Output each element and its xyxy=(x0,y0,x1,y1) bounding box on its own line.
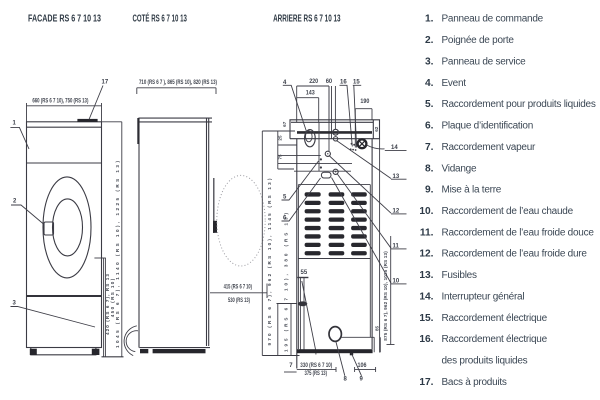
svg-text:10.: 10. xyxy=(419,206,433,217)
svg-text:75: 75 xyxy=(278,154,283,160)
svg-text:4.: 4. xyxy=(425,78,434,89)
svg-text:Fusibles: Fusibles xyxy=(442,270,477,281)
svg-text:Raccordement de l’eau chaude: Raccordement de l’eau chaude xyxy=(442,206,574,217)
svg-text:Raccordement vapeur: Raccordement vapeur xyxy=(442,142,537,153)
svg-text:375 (RS 13): 375 (RS 13) xyxy=(305,371,328,377)
svg-text:55: 55 xyxy=(301,270,308,276)
svg-text:15.: 15. xyxy=(419,313,433,324)
svg-text:14: 14 xyxy=(391,145,398,151)
svg-text:220: 220 xyxy=(309,79,319,85)
svg-text:Mise à la terre: Mise à la terre xyxy=(442,185,502,196)
svg-text:16: 16 xyxy=(340,80,347,86)
svg-text:17: 17 xyxy=(102,80,109,86)
svg-text:Raccordement électrique: Raccordement électrique xyxy=(442,334,548,345)
svg-text:415 (RS 6 7 10): 415 (RS 6 7 10) xyxy=(224,285,252,291)
svg-text:Raccordement électrique: Raccordement électrique xyxy=(442,313,548,324)
svg-text:FACADE RS 6 7 10 13: FACADE RS 6 7 10 13 xyxy=(28,14,101,25)
svg-text:6.: 6. xyxy=(425,121,434,132)
svg-text:190: 190 xyxy=(360,99,370,105)
svg-text:330 (RS 6 7 10): 330 (RS 6 7 10) xyxy=(300,363,332,369)
svg-text:ARRIERE RS 6 7 10 13: ARRIERE RS 6 7 10 13 xyxy=(273,14,341,25)
svg-text:Raccordement de l’eau froide d: Raccordement de l’eau froide douce xyxy=(442,227,595,238)
svg-text:Event: Event xyxy=(442,78,467,89)
svg-text:8.: 8. xyxy=(425,163,434,174)
svg-text:710 (RS 6 7 ), 865 (RS 10), 82: 710 (RS 6 7 ), 865 (RS 10), 820 (RS 13) xyxy=(139,80,217,86)
svg-text:Bacs à produits: Bacs à produits xyxy=(442,377,507,388)
svg-text:des produits liquides: des produits liquides xyxy=(442,356,528,367)
svg-text:13.: 13. xyxy=(419,270,433,281)
svg-text:COTÉ RS 6 7 10 13: COTÉ RS 6 7 10 13 xyxy=(133,13,188,25)
svg-text:11.: 11. xyxy=(420,227,434,238)
svg-text:530 (RS 13): 530 (RS 13) xyxy=(228,298,250,304)
svg-text:17.: 17. xyxy=(419,377,433,388)
svg-text:Raccordement pour produits liq: Raccordement pour produits liquides xyxy=(442,99,596,110)
svg-text:16.: 16. xyxy=(419,334,433,345)
svg-text:9.: 9. xyxy=(425,185,434,196)
svg-text:Vidange: Vidange xyxy=(442,163,477,174)
svg-text:1.: 1. xyxy=(425,14,434,25)
svg-text:12.: 12. xyxy=(419,249,433,260)
svg-text:Interrupteur général: Interrupteur général xyxy=(442,292,525,303)
svg-text:60: 60 xyxy=(326,79,333,85)
svg-text:106: 106 xyxy=(358,363,368,369)
svg-text:25: 25 xyxy=(278,135,283,141)
svg-text:Panneau de commande: Panneau de commande xyxy=(442,14,544,25)
svg-text:660 (RS 6 7 10), 750 (RS 13): 660 (RS 6 7 10), 750 (RS 13) xyxy=(32,99,88,105)
svg-text:Poignée de porte: Poignée de porte xyxy=(442,35,515,46)
svg-text:Plaque d’identification: Plaque d’identification xyxy=(442,121,534,132)
svg-text:Raccordement de l’eau froide d: Raccordement de l’eau froide dure xyxy=(442,249,588,260)
svg-text:2.: 2. xyxy=(425,35,434,46)
svg-text:7.: 7. xyxy=(425,142,434,153)
svg-text:67: 67 xyxy=(282,121,287,127)
svg-text:5.: 5. xyxy=(425,99,434,110)
svg-text:3.: 3. xyxy=(425,56,434,67)
svg-text:62: 62 xyxy=(374,126,379,132)
svg-text:875 (RS 6 7), 962 (RS 10), 102: 875 (RS 6 7), 962 (RS 10), 1025 (RS 13) xyxy=(383,251,388,341)
svg-text:85: 85 xyxy=(374,325,379,331)
svg-text:15: 15 xyxy=(353,80,360,86)
svg-text:14.: 14. xyxy=(419,292,433,303)
svg-text:Panneau de service: Panneau de service xyxy=(442,56,527,67)
svg-text:143: 143 xyxy=(306,91,316,97)
